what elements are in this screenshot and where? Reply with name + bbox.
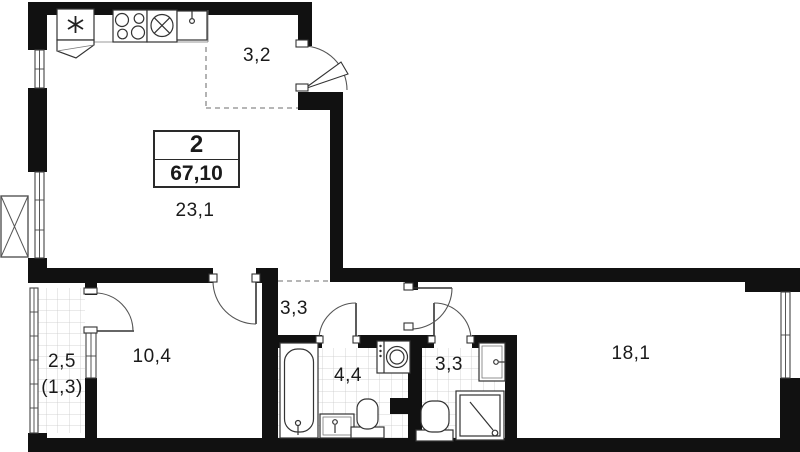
area-label-bathroom: 4,4 — [334, 365, 362, 387]
kitchen-fixtures — [57, 9, 208, 58]
washing-machine-icon — [377, 341, 410, 373]
window-left-lower — [35, 172, 44, 258]
room1-door — [209, 274, 260, 324]
area-label-loggia-reduced: (1,3) — [41, 377, 83, 399]
area-label-hallway: 3,3 — [280, 298, 308, 320]
washbasin-icon — [177, 11, 207, 40]
floor-plan-drawing — [0, 0, 800, 452]
shower-tray-icon — [456, 391, 504, 440]
area-label-shower-room: 3,3 — [435, 354, 463, 376]
window-right — [781, 292, 790, 378]
fridge-icon — [57, 9, 94, 40]
bathroom-door — [316, 303, 360, 343]
shower-toilet-icon — [416, 401, 453, 441]
floor-plan: 2 67,10 3,2 23,1 10,4 3,3 2,5 (1,3) 4,4 … — [0, 0, 800, 452]
shower-sink-icon — [479, 343, 505, 381]
corner-cabinet — [57, 40, 94, 58]
window-left-upper — [35, 50, 44, 88]
total-area: 67,10 — [155, 160, 238, 187]
loggia-glazing — [30, 288, 38, 433]
bathtub-icon — [280, 343, 318, 438]
area-label-bedroom: 18,1 — [612, 343, 651, 365]
entrance-door — [296, 40, 348, 91]
walls — [28, 2, 800, 452]
ac-basket-icon — [1, 196, 28, 257]
area-label-entry-hall: 3,2 — [243, 45, 271, 67]
doors — [84, 40, 474, 343]
area-label-room1: 10,4 — [133, 346, 172, 368]
summary-box: 2 67,10 — [153, 130, 240, 188]
area-label-loggia: 2,5 — [48, 351, 76, 373]
shower-room-door — [428, 303, 474, 343]
bathroom-sink-icon — [320, 414, 354, 438]
area-label-kitchen-living: 23,1 — [176, 200, 215, 222]
rooms-count: 2 — [155, 132, 238, 160]
stove-icon — [113, 10, 147, 42]
bedroom-door — [404, 283, 452, 330]
loggia-block-window — [86, 333, 96, 378]
kitchen-sink-icon — [147, 10, 177, 42]
